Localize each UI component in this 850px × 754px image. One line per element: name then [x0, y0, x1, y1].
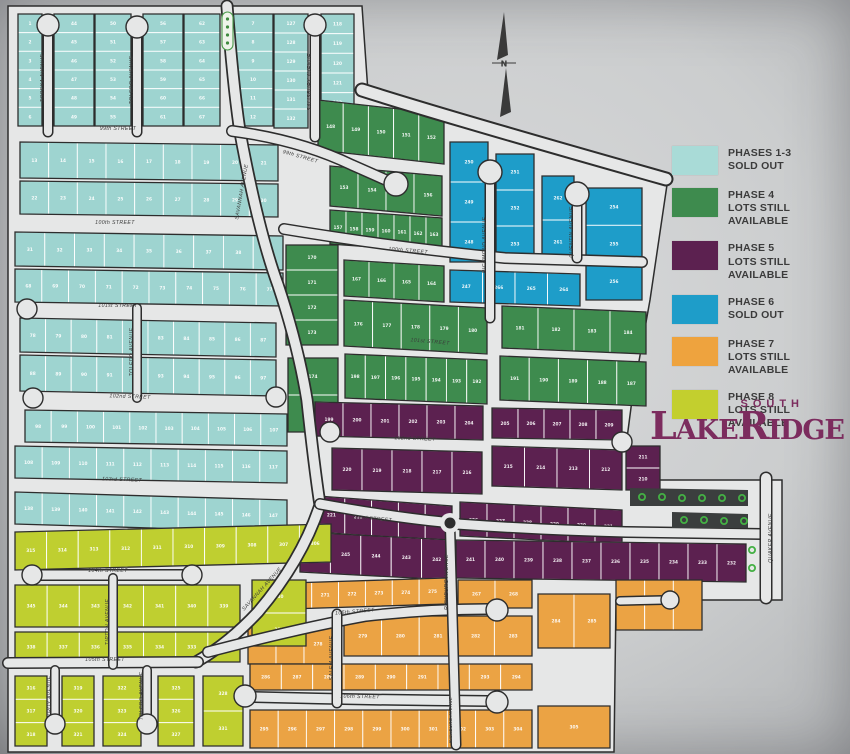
lot-block-og: 295296297298299300301302303304 — [250, 710, 532, 748]
lot-number: 220 — [343, 467, 352, 473]
lot-number: 187 — [627, 381, 636, 387]
lot-number: 62 — [199, 21, 205, 27]
lot-number: 333 — [187, 645, 196, 651]
lot-number: 274 — [401, 590, 410, 596]
lot-number: 278 — [314, 642, 323, 648]
lot-number: 52 — [110, 58, 116, 64]
street-label: RICHBURG AVENUE — [444, 554, 450, 610]
lot-number: 184 — [624, 330, 633, 336]
legend-item: PHASE 4LOTS STILL AVAILABLE — [672, 188, 850, 228]
north-arrow-icon: N — [492, 12, 516, 117]
lot-number: 32 — [57, 247, 63, 253]
lot-number: 165 — [402, 279, 411, 285]
lot-number: 20 — [232, 160, 238, 166]
lot-number: 12 — [250, 114, 256, 120]
lot-number: 321 — [74, 732, 83, 738]
lot-number: 117 — [269, 464, 278, 470]
lot-number: 331 — [219, 726, 228, 732]
lot-number: 119 — [333, 41, 342, 47]
street-label: TOLEDO AVENUE — [129, 55, 135, 104]
lot-number: 211 — [639, 455, 648, 461]
lot-number: 129 — [287, 59, 296, 65]
lot-number: 173 — [308, 330, 317, 336]
lot-number: 88 — [30, 371, 36, 377]
lot-number: 285 — [588, 619, 597, 625]
lot-number: 314 — [58, 547, 67, 553]
lot-number: 71 — [106, 285, 112, 291]
lot-block-rowG: 9899100101102103104105106107 — [25, 410, 287, 446]
lot-number: 76 — [240, 287, 246, 293]
lot-number: 113 — [160, 462, 169, 468]
lot-number: 210 — [639, 477, 648, 483]
lot-number: 144 — [187, 511, 196, 517]
lot-block-of: 286287288289290291292293294 — [250, 664, 532, 690]
lot-block-bBot: 247266265264 — [450, 270, 580, 306]
lot-block-y4e: 328331 — [203, 676, 243, 746]
lot-number: 236 — [611, 559, 620, 565]
cul-de-sac-bulb — [612, 432, 632, 452]
lot-number: 217 — [433, 469, 442, 475]
legend-item: PHASE 6SOLD OUT — [672, 295, 850, 324]
lot-number: 101 — [112, 425, 121, 431]
lot-number: 158 — [350, 226, 359, 232]
lot-block-tG: 127128129130131132 — [274, 14, 308, 128]
lot-number: 84 — [183, 336, 189, 342]
lot-number: 190 — [539, 377, 548, 383]
street-label: RICHBURG AVENUE — [448, 697, 453, 743]
lot-number: 162 — [414, 231, 423, 237]
cul-de-sac-bulb — [126, 16, 148, 38]
lot-number: 196 — [391, 376, 400, 382]
lot-number: 150 — [377, 130, 386, 136]
lot-number: 28 — [203, 197, 209, 203]
cul-de-sac-bulb — [661, 591, 679, 609]
lot-number: 127 — [287, 21, 296, 27]
street-ofanStem — [620, 600, 664, 601]
lot-number: 241 — [466, 557, 475, 563]
lot-number: 178 — [411, 325, 420, 331]
lot-number: 138 — [24, 506, 33, 512]
lot-number: 310 — [184, 544, 193, 550]
lot-number: 248 — [465, 240, 474, 246]
lot-number: 261 — [554, 240, 563, 246]
lot-number: 90 — [81, 372, 87, 378]
lot-number: 345 — [27, 604, 36, 610]
lot-number: 337 — [59, 645, 68, 651]
lot-number: 339 — [219, 604, 228, 610]
lot-number: 203 — [437, 420, 446, 426]
lot-block-p1b: 205206207208209 — [492, 408, 622, 440]
cul-de-sac-bulb — [37, 14, 59, 36]
lot-number: 9 — [252, 58, 255, 64]
lot-number: 164 — [427, 281, 436, 287]
lot-number: 34 — [116, 248, 122, 254]
lot-block-pColE: 211210 — [626, 446, 660, 490]
lot-number: 273 — [374, 591, 383, 597]
lot-number: 286 — [261, 675, 270, 681]
lot-number: 49 — [71, 114, 77, 120]
legend-item: PHASE 7LOTS STILL AVAILABLE — [672, 337, 850, 377]
lot-number: 323 — [118, 709, 127, 715]
lot-number: 98 — [35, 424, 41, 430]
lot-number: 1 — [29, 21, 32, 27]
lot-number: 301 — [429, 727, 438, 733]
lot-number: 250 — [465, 160, 474, 166]
lot-number: 182 — [552, 327, 561, 333]
lot-number: 266 — [494, 285, 503, 291]
lot-number: 22 — [31, 195, 37, 201]
lot-number: 298 — [344, 727, 353, 733]
lot-number: 152 — [427, 135, 436, 141]
legend-label: PHASE 5LOTS STILL AVAILABLE — [728, 241, 850, 281]
lot-number: 140 — [79, 508, 88, 514]
lot-number: 37 — [206, 249, 212, 255]
cul-de-sac-bulb — [384, 172, 408, 196]
lot-number: 245 — [341, 552, 350, 558]
cul-de-sac-bulb — [22, 565, 42, 585]
lot-number: 234 — [669, 560, 678, 566]
lot-number: 19 — [203, 160, 209, 166]
lot-number: 201 — [381, 418, 390, 424]
lot-number: 191 — [510, 376, 519, 382]
lot-number: 254 — [610, 204, 619, 210]
lot-number: 293 — [481, 675, 490, 681]
lot-number: 251 — [511, 170, 520, 176]
lot-number: 21 — [261, 160, 267, 166]
lot-number: 243 — [402, 555, 411, 561]
lot-block-p2a: 220219218217216 — [332, 448, 482, 494]
lot-number: 200 — [353, 418, 362, 424]
lot-number: 56 — [160, 21, 166, 27]
lot-number: 99 — [61, 424, 67, 430]
lot-block-y4c: 322323324 — [103, 676, 141, 746]
lot-number: 53 — [110, 77, 116, 83]
plat-map-page: 1234564445464748495051525354555657585960… — [0, 0, 850, 754]
lot-number: 287 — [293, 675, 302, 681]
lot-number: 100 — [86, 425, 95, 431]
lot-number: 146 — [242, 512, 251, 518]
street-label: TIPTON AVENUE — [105, 599, 111, 646]
lot-number: 81 — [107, 334, 113, 340]
lot-number: 327 — [172, 732, 181, 738]
lot-number: 242 — [432, 557, 441, 563]
lot-number: 341 — [155, 604, 164, 610]
legend-label: PHASE 6SOLD OUT — [728, 295, 784, 322]
lot-number: 116 — [242, 464, 251, 470]
lot-number: 192 — [472, 379, 481, 385]
lot-block-y4d: 325326327 — [158, 676, 194, 746]
lot-number: 208 — [579, 422, 588, 428]
lot-number: 320 — [74, 709, 83, 715]
lot-number: 159 — [366, 227, 375, 233]
street-label: 100th STREET — [95, 220, 135, 226]
lot-number: 237 — [582, 558, 591, 564]
lot-number: 235 — [640, 559, 649, 565]
lot-block-tC: 505152535455 — [95, 14, 131, 126]
street-label: SALEM AVENUE — [329, 636, 335, 681]
street-label: QUENTIN AVENUE — [569, 206, 575, 257]
legend-label: PHASE 7LOTS STILL AVAILABLE — [728, 337, 850, 377]
lot-block-p4b: 241240239238237236235234233232 — [456, 540, 746, 582]
lot-block-gRowB: 181182183184 — [502, 306, 646, 354]
lot-number: 213 — [569, 466, 578, 472]
lot-number: 193 — [452, 378, 461, 384]
lot-number: 188 — [598, 380, 607, 386]
lot-number: 328 — [219, 691, 228, 697]
lot-number: 221 — [327, 513, 336, 519]
lot-number: 102 — [138, 425, 147, 431]
lot-number: 342 — [123, 604, 132, 610]
lot-number: 18 — [175, 159, 181, 165]
lot-number: 307 — [279, 542, 288, 548]
lot-number: 172 — [308, 305, 317, 311]
lot-number: 177 — [382, 323, 391, 329]
street-label: TOLEDO AVENUE — [139, 671, 145, 720]
lot-number: 31 — [27, 247, 33, 253]
lot-number: 233 — [698, 560, 707, 566]
lot-number: 83 — [158, 335, 164, 341]
legend-item: PHASES 1-3SOLD OUT — [672, 146, 850, 175]
lot-number: 157 — [334, 225, 343, 231]
lot-block-p2b: 215214213212 — [492, 446, 622, 490]
lot-number: 344 — [59, 604, 68, 610]
lot-block-rowC: 313233343536373839 — [15, 232, 283, 270]
lot-number: 54 — [110, 96, 116, 102]
lot-block-oh: 305 — [538, 706, 610, 748]
lot-number: 304 — [513, 727, 522, 733]
lot-number: 317 — [27, 709, 36, 715]
lot-block-gRowC: 198197196195194193192 — [345, 354, 487, 404]
lot-number: 318 — [27, 732, 36, 738]
lot-number: 167 — [352, 276, 361, 282]
lot-number: 160 — [382, 229, 391, 235]
lot-number: 103 — [165, 426, 174, 432]
lot-block-gRowD: 191190189188187 — [500, 356, 646, 406]
lot-number: 64 — [199, 58, 205, 64]
lot-number: 45 — [71, 40, 77, 46]
lot-block-rowF: 88899091929394959697 — [20, 355, 276, 396]
street-label: 99th STREET — [100, 126, 137, 132]
lot-number: 48 — [71, 96, 77, 102]
lot-number: 336 — [91, 645, 100, 651]
lot-number: 305 — [570, 725, 579, 731]
lot-number: 238 — [553, 558, 562, 564]
lot-number: 267 — [472, 592, 481, 598]
lot-number: 202 — [409, 419, 418, 425]
lot-block-y2: 345344343342341340339 — [15, 585, 240, 627]
lot-number: 65 — [199, 77, 205, 83]
cul-de-sac-bulb — [565, 182, 589, 206]
lot-number: 114 — [187, 463, 196, 469]
lot-number: 153 — [340, 185, 349, 191]
lot-number: 120 — [333, 61, 342, 67]
lot-block-obulb: 284285 — [538, 594, 610, 648]
street-label: TOPEKA AVENUE — [40, 54, 46, 102]
north-label: N — [501, 60, 508, 69]
lot-number: 149 — [351, 127, 360, 133]
lot-number: 72 — [133, 285, 139, 291]
cul-de-sac-bulb — [266, 387, 286, 407]
lot-number: 218 — [403, 469, 412, 475]
lot-number: 206 — [527, 421, 536, 427]
lot-block-bQuenR: 254255256 — [586, 188, 642, 300]
lot-number: 247 — [462, 284, 471, 290]
lot-number: 104 — [191, 426, 200, 432]
lot-number: 58 — [160, 58, 166, 64]
lot-number: 338 — [27, 645, 36, 651]
lot-number: 272 — [348, 592, 357, 598]
lot-number: 283 — [509, 634, 518, 640]
lot-number: 26 — [146, 197, 152, 203]
lot-number: 271 — [321, 592, 330, 598]
lot-number: 232 — [727, 560, 736, 566]
lot-number: 132 — [287, 116, 296, 122]
lot-number: 142 — [133, 509, 142, 515]
lot-number: 268 — [509, 592, 518, 598]
lot-number: 145 — [215, 512, 224, 518]
lot-number: 80 — [81, 334, 87, 340]
lot-number: 93 — [158, 373, 164, 379]
lot-number: 115 — [215, 463, 224, 469]
lot-number: 156 — [424, 192, 433, 198]
lot-number: 289 — [355, 675, 364, 681]
legend-label: PHASE 4LOTS STILL AVAILABLE — [728, 188, 850, 228]
lot-number: 180 — [468, 328, 477, 334]
lot-number: 198 — [351, 374, 360, 380]
lot-number: 5 — [29, 96, 32, 102]
street-label: TOLEDO AVENUE — [129, 327, 135, 376]
lot-number: 151 — [402, 132, 411, 138]
lot-number: 299 — [372, 727, 381, 733]
lot-block-tE: 626364656667 — [184, 14, 220, 126]
legend-swatch — [672, 337, 718, 366]
lot-number: 111 — [106, 461, 115, 467]
lot-number: 44 — [71, 21, 77, 27]
lot-number: 78 — [30, 333, 36, 339]
lot-number: 51 — [110, 40, 116, 46]
lot-number: 308 — [248, 543, 257, 549]
lakeridge-logo: SOUTH LakeRidge — [650, 398, 830, 445]
street-label: RICHMOND AVENUE — [482, 216, 488, 273]
lot-number: 194 — [432, 377, 441, 383]
legend-swatch — [672, 241, 718, 270]
lot-number: 91 — [107, 372, 113, 378]
lot-number: 14 — [60, 158, 66, 164]
lot-number: 33 — [86, 248, 92, 254]
lot-number: 94 — [183, 374, 189, 380]
lot-number: 13 — [31, 158, 37, 164]
cul-de-sac-bulb — [304, 14, 326, 36]
cul-de-sac-bulb — [23, 388, 43, 408]
lot-number: 50 — [110, 21, 116, 27]
lot-number: 11 — [250, 96, 256, 102]
lot-block-y4a: 316317318 — [15, 676, 47, 746]
lot-number: 77 — [267, 287, 273, 293]
lot-number: 319 — [74, 685, 83, 691]
lot-number: 252 — [511, 206, 520, 212]
lot-number: 74 — [186, 286, 192, 292]
lot-block-gRowA: 176177178179180 — [344, 300, 487, 354]
lot-block-rowH: 108109110111112113114115116117 — [15, 446, 287, 483]
lot-number: 36 — [176, 249, 182, 255]
lot-number: 110 — [79, 461, 88, 467]
lot-number: 324 — [118, 732, 127, 738]
lot-number: 343 — [91, 604, 100, 610]
lot-number: 24 — [89, 196, 95, 202]
lot-number: 66 — [199, 96, 205, 102]
street-label: QUAKER AVENUE — [768, 513, 774, 563]
lot-number: 264 — [559, 287, 568, 293]
lot-number: 46 — [71, 58, 77, 64]
lot-number: 176 — [354, 321, 363, 327]
lot-number: 47 — [71, 77, 77, 83]
lot-number: 214 — [536, 465, 545, 471]
lot-number: 7 — [252, 21, 255, 27]
lot-number: 280 — [396, 634, 405, 640]
lot-number: 216 — [463, 470, 472, 476]
lot-number: 87 — [260, 337, 266, 343]
lot-number: 284 — [552, 619, 561, 625]
cul-de-sac-bulb — [478, 160, 502, 184]
lot-number: 95 — [209, 374, 215, 380]
lot-number: 297 — [316, 727, 325, 733]
lot-block-rowD: 68697071727374757677 — [15, 269, 283, 306]
lot-number: 4 — [29, 77, 32, 83]
lot-number: 89 — [55, 371, 61, 377]
lot-number: 179 — [440, 326, 449, 332]
lot-number: 8 — [252, 40, 255, 46]
lot-number: 23 — [60, 196, 66, 202]
lot-number: 17 — [146, 159, 152, 165]
legend-swatch — [672, 188, 718, 217]
lot-number: 335 — [123, 645, 132, 651]
lot-number: 6 — [29, 114, 32, 120]
lot-number: 96 — [235, 375, 241, 381]
lot-number: 316 — [27, 685, 36, 691]
lot-number: 311 — [153, 545, 162, 551]
lot-number: 205 — [501, 421, 510, 427]
lot-number: 195 — [412, 377, 421, 383]
cul-de-sac-bulb — [486, 599, 508, 621]
lot-number: 86 — [235, 337, 241, 343]
lot-number: 197 — [371, 375, 380, 381]
lot-number: 334 — [155, 645, 164, 651]
lot-number: 219 — [373, 468, 382, 474]
street-label: TROY AVENUE — [47, 675, 53, 716]
lot-number: 244 — [372, 554, 381, 560]
street-marker-capsule — [222, 12, 233, 50]
lot-number: 69 — [52, 284, 58, 290]
lot-number: 181 — [516, 325, 525, 331]
lot-number: 38 — [235, 250, 241, 256]
lot-number: 128 — [287, 40, 296, 46]
street-label: SALISBURY AVENUE — [307, 53, 313, 111]
street-label: 104th STREET — [88, 568, 128, 574]
lot-number: 255 — [610, 242, 619, 248]
lot-number: 106 — [243, 427, 252, 433]
lot-number: 16 — [117, 159, 123, 165]
lot-number: 35 — [146, 249, 152, 255]
lot-number: 55 — [110, 114, 116, 120]
lot-number: 239 — [524, 558, 533, 564]
lot-number: 215 — [504, 464, 513, 470]
legend-swatch — [672, 295, 718, 324]
lot-number: 73 — [159, 285, 165, 291]
lot-block-od: 279280281282283 — [344, 616, 532, 656]
lot-number: 97 — [260, 375, 266, 381]
lot-number: 60 — [160, 96, 166, 102]
lot-number: 139 — [51, 507, 60, 513]
